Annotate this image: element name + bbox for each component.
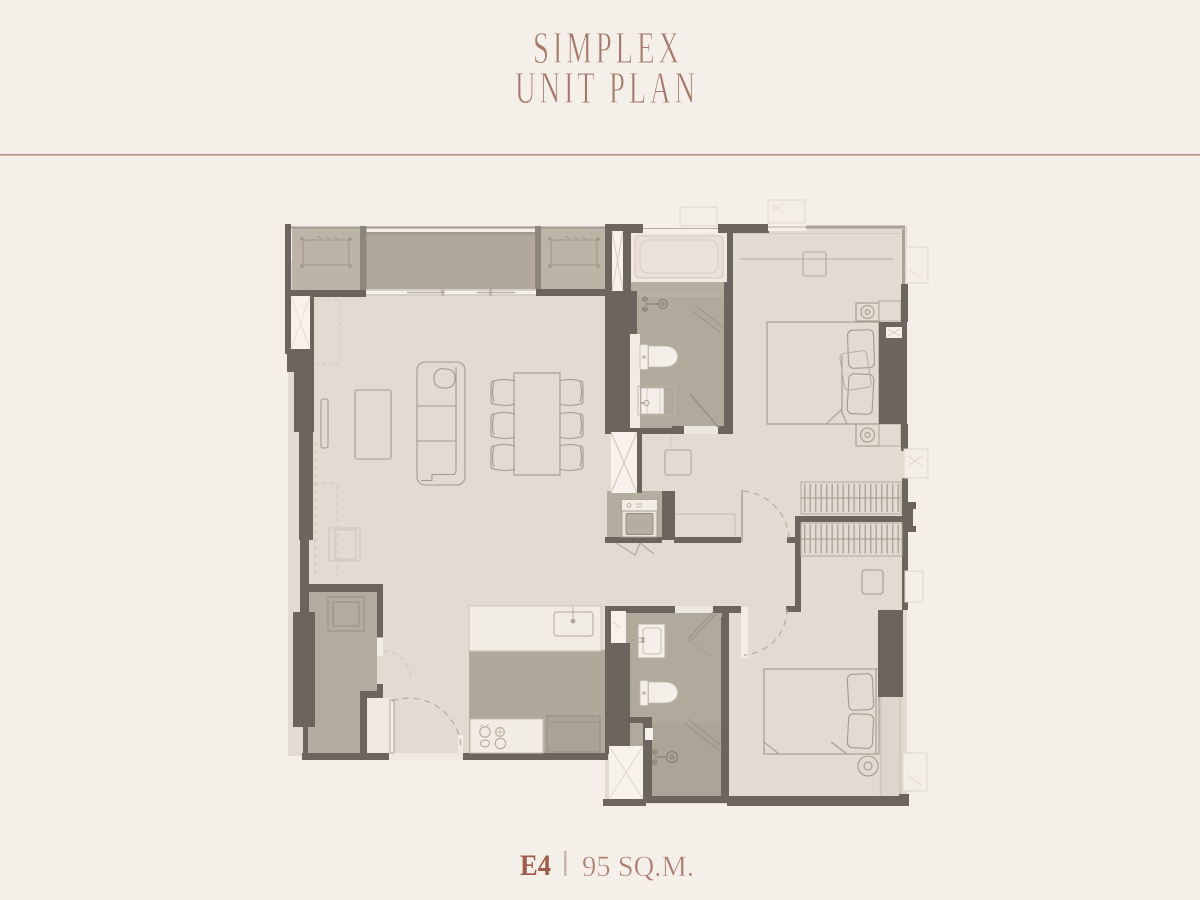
svg-text:UNIT PLAN: UNIT PLAN bbox=[515, 63, 699, 113]
svg-text:95 SQ.M.: 95 SQ.M. bbox=[582, 850, 694, 883]
svg-text:E4: E4 bbox=[520, 849, 551, 882]
